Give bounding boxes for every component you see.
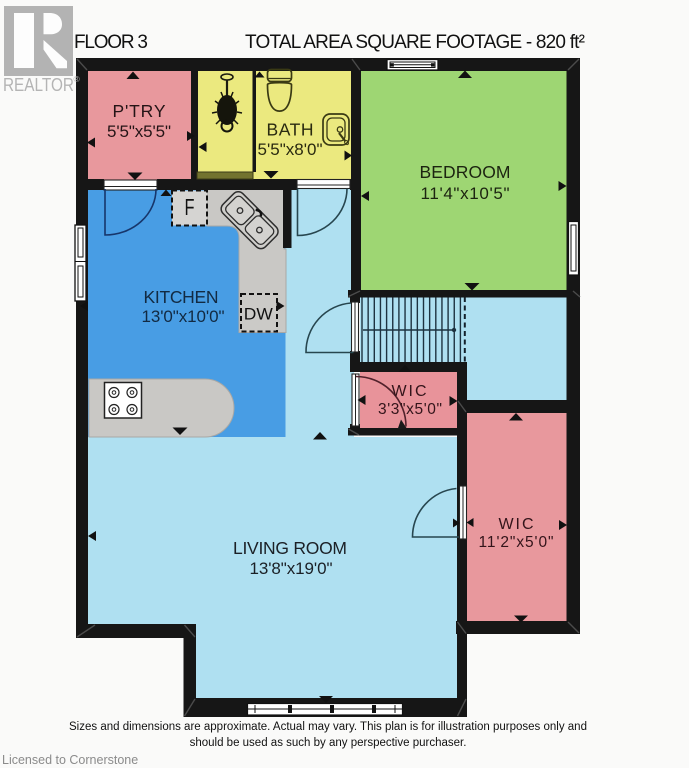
svg-text:REALTOR: REALTOR [3, 74, 74, 95]
svg-text:BEDROOM: BEDROOM [420, 162, 511, 182]
svg-text:13'0"x10'0": 13'0"x10'0" [142, 307, 225, 326]
svg-text:WIC: WIC [499, 516, 534, 533]
svg-text:11'4"x10'5": 11'4"x10'5" [421, 184, 510, 203]
svg-text:F: F [185, 194, 195, 220]
svg-text:11'2"x5'0": 11'2"x5'0" [479, 534, 554, 551]
svg-text:DW: DW [244, 305, 273, 324]
svg-text:5'5"x8'0": 5'5"x8'0" [258, 140, 323, 159]
svg-text:P'TRY: P'TRY [113, 101, 166, 121]
svg-text:®: ® [74, 74, 81, 84]
svg-text:Sizes and dimensions are appro: Sizes and dimensions are approximate. Ac… [69, 721, 587, 733]
svg-text:Licensed to Cornerstone: Licensed to Cornerstone [2, 753, 138, 767]
svg-text:LIVING ROOM: LIVING ROOM [233, 538, 347, 558]
svg-text:WIC: WIC [392, 383, 427, 400]
svg-text:KITCHEN: KITCHEN [144, 287, 219, 307]
svg-text:BATH: BATH [267, 120, 314, 140]
svg-text:TOTAL AREA SQUARE FOOTAGE - 82: TOTAL AREA SQUARE FOOTAGE - 820 ft² [245, 32, 585, 53]
svg-text:3'3"x5'0": 3'3"x5'0" [378, 401, 442, 418]
svg-text:13'8"x19'0": 13'8"x19'0" [250, 559, 333, 578]
svg-text:should be used as such by any: should be used as such by any perspectiv… [190, 737, 467, 749]
svg-text:FLOOR 3: FLOOR 3 [74, 32, 148, 53]
svg-text:5'5"x5'5": 5'5"x5'5" [107, 122, 171, 141]
